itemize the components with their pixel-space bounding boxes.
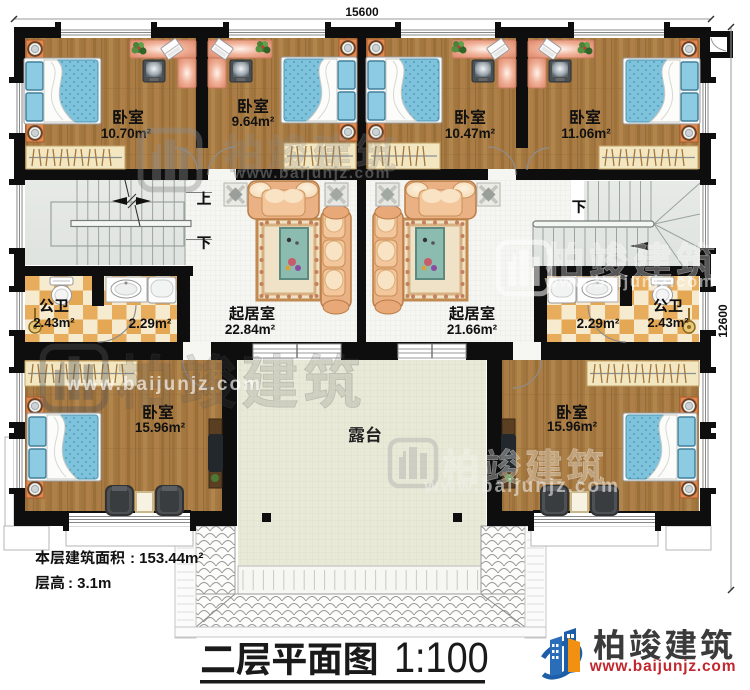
svg-text:: 3.1m: : 3.1m [68, 575, 111, 592]
svg-text:21.66m²: 21.66m² [447, 322, 498, 337]
svg-text:2.29m²: 2.29m² [129, 316, 172, 331]
svg-text:www.baijunjz.com: www.baijunjz.com [589, 658, 737, 675]
svg-text:1:100: 1:100 [394, 633, 489, 682]
svg-text:15600: 15600 [345, 5, 379, 19]
svg-text:www.baijunjz.com: www.baijunjz.com [423, 476, 620, 497]
svg-text:22.84m²: 22.84m² [225, 322, 276, 337]
svg-text:2.29m²: 2.29m² [577, 316, 620, 331]
svg-text:www.baijunjz.com: www.baijunjz.com [544, 272, 716, 291]
svg-text:2.43m²: 2.43m² [647, 315, 689, 330]
svg-text:12600: 12600 [716, 304, 730, 338]
svg-text:11.06m²: 11.06m² [561, 126, 611, 141]
svg-text:www.baijunjz.com: www.baijunjz.com [65, 374, 262, 395]
svg-text:: 153.44m²: : 153.44m² [130, 550, 203, 567]
svg-text:15.96m²: 15.96m² [547, 419, 598, 434]
svg-text:15.96m²: 15.96m² [135, 420, 186, 435]
svg-text:10.47m²: 10.47m² [445, 126, 496, 141]
svg-text:2.43m²: 2.43m² [33, 315, 75, 330]
svg-text:www.baijunjz.com: www.baijunjz.com [232, 165, 391, 182]
svg-text:9.64m²: 9.64m² [232, 114, 275, 129]
